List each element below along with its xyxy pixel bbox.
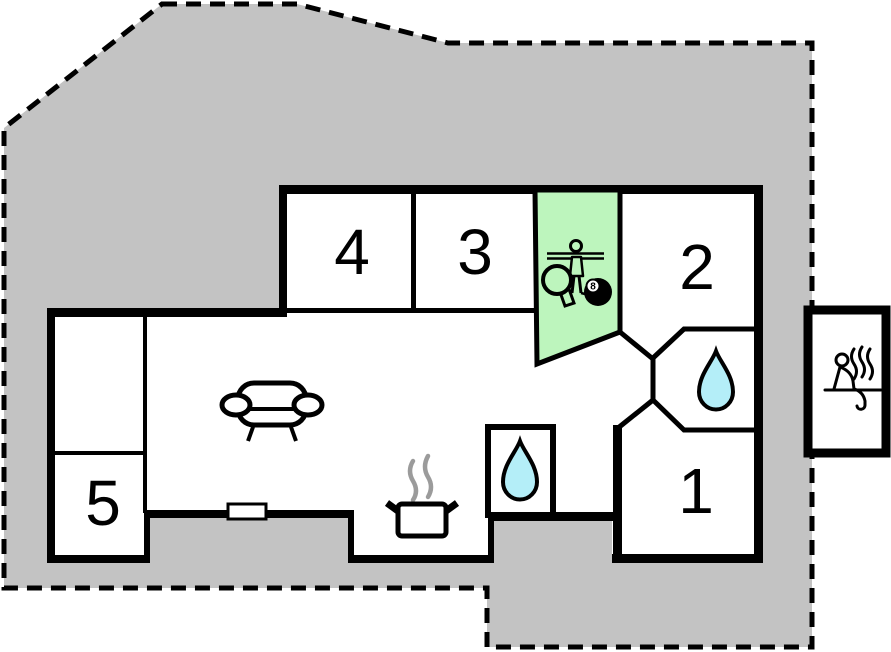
wall-room1-bottom — [612, 554, 763, 563]
floor-plan-svg: 8 4 3 2 1 5 — [0, 0, 891, 652]
wall-right — [754, 185, 763, 563]
wall-room5-divider — [51, 451, 145, 455]
room-4-label: 4 — [334, 216, 370, 288]
wall-left-section-top — [47, 308, 287, 317]
wall-room4-left — [279, 185, 287, 317]
wall-left-column-divider — [143, 313, 147, 513]
wall-room4-room3-divider — [411, 190, 416, 313]
wall-left — [47, 308, 55, 563]
wall-room1-left — [613, 425, 622, 563]
sauna-box — [808, 310, 886, 453]
floor-plan: 8 4 3 2 1 5 — [0, 0, 891, 652]
window — [228, 504, 266, 519]
room-1-label: 1 — [678, 455, 714, 527]
wall-kitchen-recess — [348, 555, 494, 563]
wall-top — [283, 185, 763, 194]
billiard-8ball-icon: 8 — [584, 278, 612, 306]
room-2-label: 2 — [679, 231, 715, 303]
wall-rooms34-bottom — [283, 308, 537, 313]
room-5-label: 5 — [85, 467, 121, 539]
eight-ball-number: 8 — [590, 282, 596, 293]
wall-room5-bottom — [47, 555, 150, 563]
room-3-label: 3 — [457, 216, 493, 288]
